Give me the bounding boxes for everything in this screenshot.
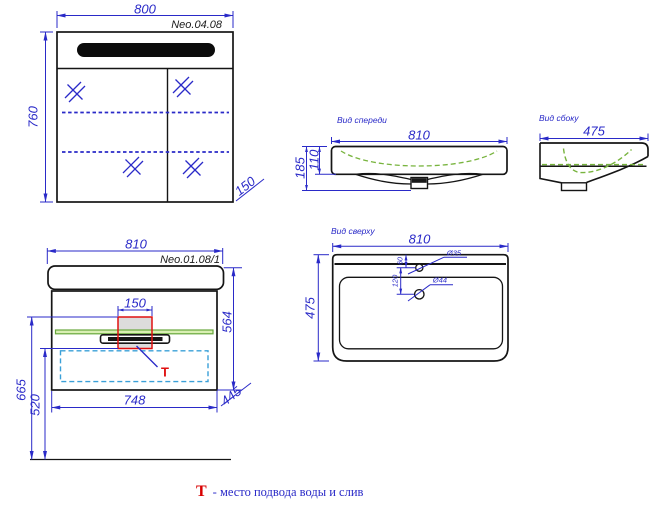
- dim-top-width: 810: [409, 232, 431, 247]
- dim-vanity-supply-height: 665: [14, 379, 29, 401]
- technical-drawing-sheet: 800 Neo.04.08 760 150 Вид спереди 810 18…: [0, 0, 654, 514]
- light-bar: [77, 43, 215, 57]
- drain-outlet-side: [562, 183, 587, 191]
- dim-mirror-height: 760: [26, 106, 41, 128]
- washbasin-top-drawing: [314, 243, 509, 361]
- legend: Т - место подвода воды и слив: [196, 483, 363, 501]
- drain-hole: [415, 290, 424, 299]
- dim-hole-spacing: 120: [391, 275, 400, 288]
- dim-mirror-width: 800: [134, 1, 156, 16]
- dim-vanity-drain-height: 520: [28, 394, 43, 416]
- dim-side-depth: 475: [583, 124, 605, 139]
- tmarker-label: Т: [161, 365, 169, 380]
- model-label-mirror: Neo.04.08: [171, 19, 222, 31]
- side-profile-top: [540, 143, 648, 157]
- mirror-cabinet-drawing: [40, 11, 264, 202]
- dim-vanity-height: 564: [220, 311, 235, 333]
- dim-vanity-width: 810: [125, 236, 147, 251]
- view-title-top: Вид сверху: [331, 226, 375, 236]
- dim-faucet-offset: 60: [398, 257, 405, 265]
- legend-t-marker: Т: [196, 483, 207, 501]
- dim-front-height-total: 185: [293, 157, 308, 179]
- side-profile-curve: [587, 157, 649, 183]
- drawing-linework: [0, 0, 654, 514]
- callout-faucet-hole: Ø35: [447, 248, 461, 257]
- model-label-vanity: Neo.01.08/1: [160, 254, 220, 266]
- basin-body: [332, 147, 508, 175]
- mirror-cabinet-outline: [57, 32, 233, 202]
- dim-front-width: 810: [408, 127, 430, 142]
- legend-text: - место подвода воды и слив: [213, 485, 364, 500]
- drain-outlet-front-dark: [412, 178, 427, 183]
- washbasin-side-drawing: [540, 134, 648, 191]
- dim-front-height-body: 110: [307, 150, 322, 171]
- basin-inner-outline: [340, 277, 503, 349]
- dim-top-depth: 475: [303, 297, 318, 319]
- view-title-side: Вид сбоку: [539, 113, 578, 123]
- washbasin-front-drawing: [302, 137, 507, 191]
- callout-drain-hole: Ø44: [433, 276, 447, 285]
- dim-vanity-inner-width: 748: [124, 393, 146, 408]
- vanity-countertop: [48, 266, 224, 289]
- dim-vanity-connection-width: 150: [124, 295, 146, 310]
- view-title-front: Вид спереди: [337, 115, 387, 125]
- shelf-strip: [56, 330, 214, 334]
- door-handle-bar: [108, 337, 163, 341]
- side-profile-left: [540, 143, 562, 183]
- vanity-drawing: [27, 248, 251, 460]
